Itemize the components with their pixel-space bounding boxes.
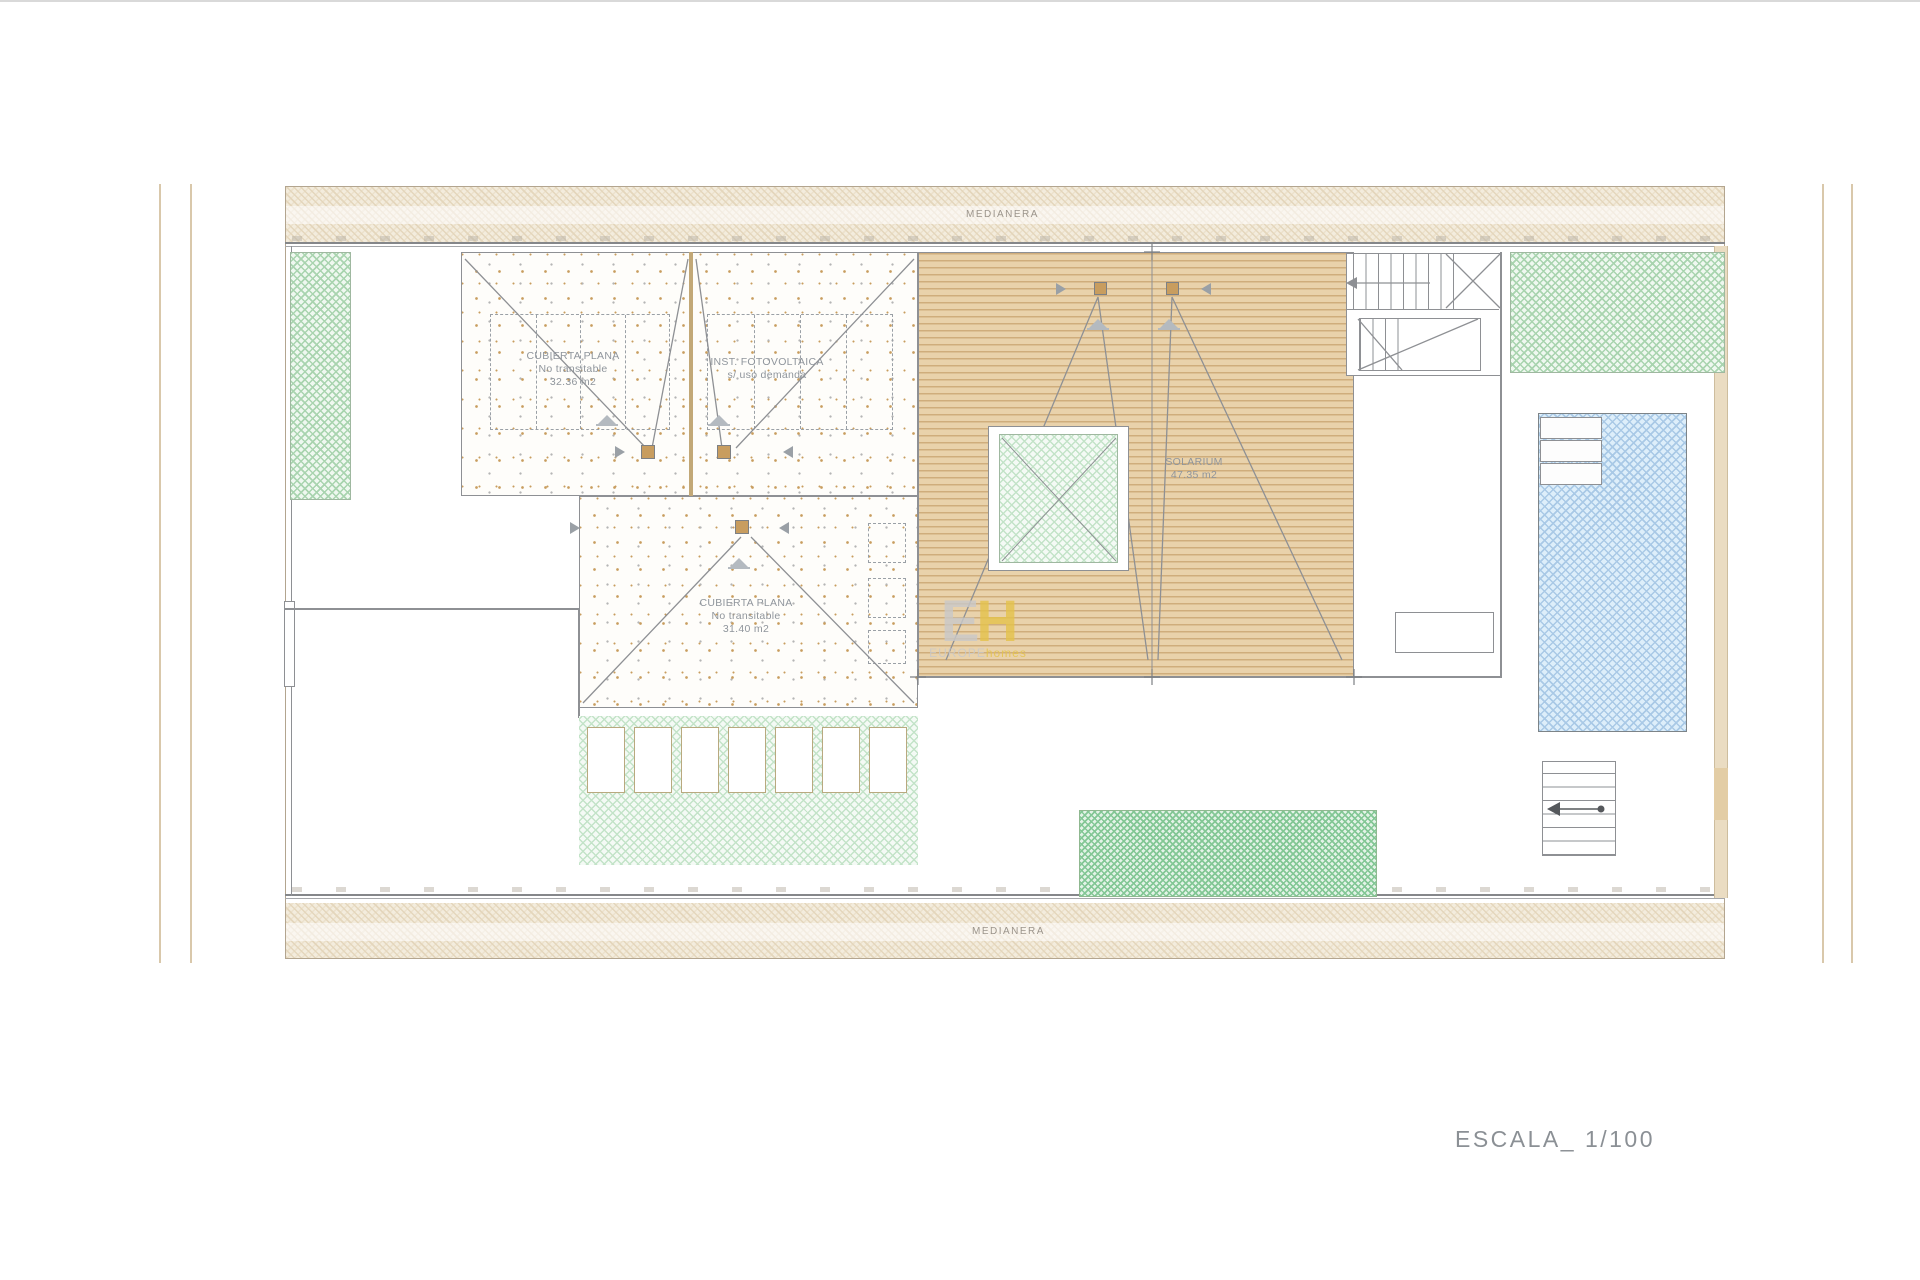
scale-label: ESCALA_ 1/100 — [1455, 1126, 1655, 1153]
solarium-label: SOLARIUM 47.35 m2 — [1152, 456, 1236, 482]
watermark-wordmark: EUROPEhomes — [903, 646, 1053, 660]
photovoltaic-line1: INST. FOTOVOLTAICA — [697, 356, 837, 369]
slope-arrow-icon — [1201, 283, 1211, 295]
roof-flat-1-line1: CUBIERTA PLANA — [503, 350, 643, 363]
stair-arrowhead — [1547, 802, 1560, 816]
slope-arrow-icon — [1056, 283, 1066, 295]
watermark-logo: EH — [903, 594, 1053, 650]
drawing-sheet: MEDIANERA MEDIANERA — [0, 0, 1920, 1280]
skylight-opening — [999, 434, 1118, 563]
photovoltaic-label: INST. FOTOVOLTAICA s/ uso demanda — [697, 356, 837, 382]
vent-icon — [1089, 319, 1107, 328]
stair-direction-arrowhead — [1346, 277, 1357, 289]
vent-icon — [598, 415, 616, 424]
chimney-marker — [1094, 282, 1107, 295]
slope-arrow-icon — [779, 522, 789, 534]
solarium-name: SOLARIUM — [1152, 456, 1236, 469]
watermark-letter-e: E — [941, 589, 977, 654]
slope-arrow-icon — [783, 446, 793, 458]
roof-flat-1-area: 32.36 m2 — [503, 376, 643, 389]
watermark-letter-h: H — [976, 589, 1015, 654]
watermark: EH EUROPEhomes — [903, 594, 1053, 660]
chimney-marker — [735, 520, 749, 534]
vent-icon — [1160, 319, 1178, 328]
chimney-marker — [717, 445, 731, 459]
roof-flat-1-line2: No transitable — [503, 363, 643, 376]
chimney-marker — [1166, 282, 1179, 295]
photovoltaic-line2: s/ uso demanda — [697, 369, 837, 382]
solarium-area: 47.35 m2 — [1152, 469, 1236, 482]
vent-icon — [730, 558, 748, 567]
roof-flat-2-label: CUBIERTA PLANA No transitable 31.40 m2 — [676, 597, 816, 636]
slope-arrow-icon — [570, 522, 580, 534]
watermark-word-homes: homes — [986, 646, 1027, 660]
roof-flat-2-area: 31.40 m2 — [676, 623, 816, 636]
skylight-cross-lines — [1000, 435, 1119, 564]
stair-arrow-origin — [1598, 806, 1605, 813]
roof-flat-1-label: CUBIERTA PLANA No transitable 32.36 m2 — [503, 350, 643, 389]
roof-flat-2-line2: No transitable — [676, 610, 816, 623]
chimney-marker — [641, 445, 655, 459]
slope-arrow-icon — [615, 446, 625, 458]
vent-icon — [710, 415, 728, 424]
watermark-word-europe: EUROPE — [929, 646, 986, 660]
roof-flat-2-line1: CUBIERTA PLANA — [676, 597, 816, 610]
